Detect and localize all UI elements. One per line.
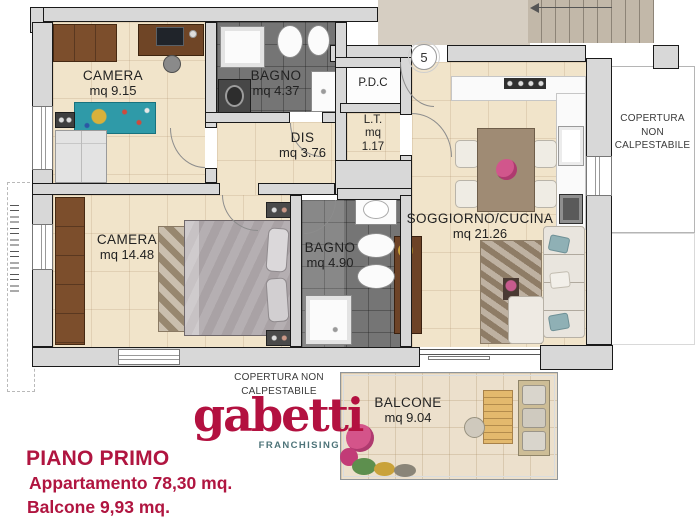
balcone-area: mq 9.04: [385, 410, 432, 425]
stair-landing: [378, 0, 530, 45]
lt-name: L.T.: [364, 114, 383, 127]
copertura-right-line1: COPERTURA: [612, 112, 693, 126]
dining-chair-4: [533, 180, 557, 208]
copertura-right-line2: NON: [612, 126, 693, 140]
dining-chair-1: [455, 140, 479, 168]
dining-flowers: [496, 159, 517, 180]
camera2-nightstand-top: [266, 202, 292, 218]
dis-area: mq 3.76: [279, 145, 326, 160]
wall-soggiorno-top-east: [447, 45, 586, 62]
kitchen-stove: [504, 78, 546, 89]
wall-bagno1-south-west: [205, 112, 290, 123]
soggiorno-label: SOGGIORNO/CUCINA mq 21.26: [400, 206, 560, 246]
bagno2-area: mq 4.90: [307, 255, 354, 270]
lt-line2: mq: [365, 127, 381, 140]
balcony-bench-cushion-2: [522, 408, 546, 428]
balcone-label: BALCONE mq 9.04: [363, 391, 453, 429]
camera1-wardrobe: [53, 24, 117, 62]
lt-line3: 1.17: [362, 141, 384, 154]
bagno1-area: mq 4.37: [253, 83, 300, 98]
kitchen-fridge: [558, 126, 584, 166]
balcony-bench-cushion-1: [522, 385, 546, 405]
copertura-right-label: COPERTURA NON CALPESTABILE: [612, 112, 693, 153]
balcony-plant-green: [352, 458, 376, 475]
wall-bottom: [32, 347, 420, 367]
gabetti-logo-subtext: FRANCHISING: [252, 440, 340, 451]
stair-direction-line: [538, 7, 612, 8]
apartment-size-line: Appartamento 78,30 mq.: [29, 473, 232, 494]
dining-chair-2: [455, 180, 479, 208]
roof-outline-right-lower: [610, 233, 695, 345]
camera1-name: CAMERA: [83, 68, 143, 83]
balcony-plant-gray: [394, 464, 416, 477]
camera2-south-window: [118, 349, 180, 365]
camera1-window: [32, 106, 53, 170]
balcony-stool: [464, 417, 485, 438]
wall-corner-southeast: [540, 345, 613, 370]
bagno2-sink-basin: [363, 200, 389, 219]
bagno1-toilet: [277, 25, 303, 58]
bagno2-label: BAGNO mq 4.90: [298, 236, 362, 274]
unit-number-badge: 5: [411, 44, 437, 70]
camera1-bed: [55, 130, 107, 183]
wall-camera1-east-lower: [205, 168, 217, 183]
left-railing-marks: [10, 205, 19, 297]
camera1-laptop: [156, 27, 184, 46]
balcony-table: [483, 390, 513, 444]
camera1-nightstand: [55, 112, 75, 128]
gabetti-logo: gabetti: [193, 392, 362, 438]
bagno2-bidet: [357, 264, 395, 289]
bagno1-shower: [220, 26, 265, 68]
bagno2-name: BAGNO: [305, 240, 356, 255]
bagno2-toilet: [357, 233, 395, 258]
balcony-sliding-door-leaf: [428, 356, 490, 360]
lt-label: L.T. mq 1.17: [344, 108, 402, 160]
balcony-sliding-door-track: [420, 349, 540, 355]
bagno1-label: BAGNO mq 4.37: [235, 64, 317, 102]
camera2-name: CAMERA: [97, 232, 157, 247]
soggiorno-area: mq 21.26: [453, 226, 507, 241]
bagno1-bidet: [307, 25, 330, 56]
camera1-area: mq 9.15: [90, 83, 137, 98]
soggiorno-name: SOGGIORNO/CUCINA: [407, 211, 554, 226]
sofa-chaise: [508, 296, 544, 344]
stair-arrow-icon: [530, 3, 539, 13]
pdc-name: P.D.C: [358, 77, 387, 89]
balcony-plant-yellow: [374, 462, 395, 476]
camera2-nightstand-bottom: [266, 330, 292, 346]
copertura-bottom-line1: COPERTURA NON: [218, 371, 340, 385]
camera2-label: CAMERA mq 14.48: [72, 228, 182, 266]
bagno1-name: BAGNO: [251, 68, 302, 83]
balcone-name: BALCONE: [374, 395, 441, 410]
pdc-label: P.D.C: [344, 74, 402, 92]
dis-name: DIS: [291, 130, 315, 145]
camera1-desk-mug: [189, 30, 197, 38]
copertura-right-line3: CALPESTABILE: [612, 139, 693, 153]
sofa-pillow-teal-2: [548, 312, 570, 331]
sofa-pillow-white: [549, 271, 571, 289]
unit-number: 5: [420, 50, 427, 65]
camera2-pillow-1: [265, 227, 289, 272]
camera1-label: CAMERA mq 9.15: [58, 64, 168, 102]
bagno2-shower: [305, 295, 352, 345]
floorplan-canvas: 5 CAMERA mq 9.15 BAGNO mq 4.37 P.D.C L.T…: [0, 0, 700, 525]
floor-title: PIANO PRIMO: [26, 447, 169, 471]
wall-camera-divider-east: [258, 183, 335, 195]
camera2-window: [32, 224, 53, 270]
wall-pillar-northeast: [653, 45, 679, 69]
camera2-area: mq 14.48: [100, 247, 154, 262]
dis-label: DIS mq 3.76: [255, 126, 350, 164]
balcony-size-line: Balcone 9,93 mq.: [27, 497, 170, 518]
wall-right: [586, 58, 612, 345]
balcony-bench-cushion-3: [522, 431, 546, 451]
soggiorno-east-window: [586, 156, 612, 196]
dining-chair-3: [533, 140, 557, 168]
kitchen-sink: [559, 194, 583, 224]
camera2-pillow-2: [265, 277, 289, 322]
camera2-wardrobe: [55, 197, 85, 345]
wall-camera-divider-west: [32, 183, 220, 195]
wall-top: [30, 7, 378, 22]
